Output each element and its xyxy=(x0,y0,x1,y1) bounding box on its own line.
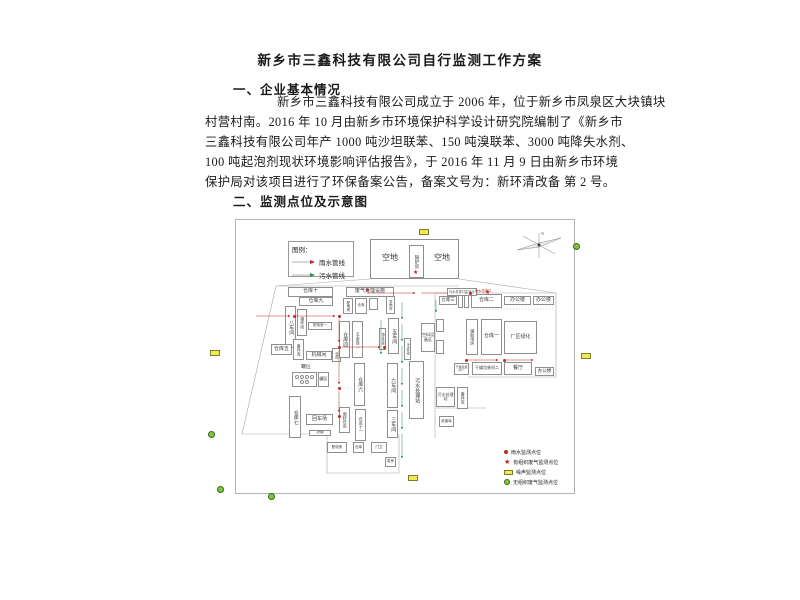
storage-tank xyxy=(295,375,299,379)
organized-gas-monitor-star: ★ xyxy=(413,270,418,276)
monitoring-legend-row: 雨水监测点位 xyxy=(504,447,572,457)
building-回车场: 回车场 xyxy=(306,414,333,425)
building-门卫: 门卫 xyxy=(371,442,387,453)
fugitive-gas-monitor-marker xyxy=(217,486,224,493)
paragraph-line: 保护局对该项目进行了环保备案公告，备案文号为：新环清改备 第 2 号。 xyxy=(205,172,625,192)
building-仓库十: 仓库十 xyxy=(288,287,333,297)
building-干燥包装间一: 干燥包装间一 xyxy=(454,363,469,375)
building-五金库二: 五金库二 xyxy=(352,321,363,358)
paragraph-line: 三鑫科技有限公司年产 1000 吨沙坦联苯、150 吨溴联苯、3000 吨降失水… xyxy=(205,132,625,152)
document-title: 新乡市三鑫科技有限公司自行监测工作方案 xyxy=(0,49,800,69)
storage-tank xyxy=(310,375,314,379)
building-配电室一: 配电室一 xyxy=(308,322,332,330)
building-凉棚: 凉棚 xyxy=(309,430,331,436)
building-厂区绿化: 厂区绿化 xyxy=(504,321,537,354)
building-泵房: 泵房 xyxy=(385,457,396,467)
building-仓库一: 仓库一 xyxy=(481,319,502,355)
building-空料设备区: 空料设备区 xyxy=(421,323,435,352)
storage-tank xyxy=(305,375,309,379)
building-干燥包装间二: 干燥包装间二 xyxy=(472,362,502,375)
building-仓库十一: 仓库十一 xyxy=(355,409,366,441)
building-办公楼: 办公楼 xyxy=(535,367,554,376)
rainwater-monitor-dot xyxy=(338,415,341,418)
organized-gas-monitor-star: ★ xyxy=(365,288,370,294)
building-操作间: 操作间 xyxy=(297,309,307,336)
building-备件库: 备件库 xyxy=(457,387,468,409)
rainwater-monitor-dot xyxy=(503,359,506,362)
monitoring-legend-row: 无组织废气监测点位 xyxy=(504,477,572,487)
pipeline-legend-title: 图例： xyxy=(292,244,350,254)
building-三车间: 三车间 xyxy=(387,410,398,438)
storage-tank xyxy=(305,380,309,384)
noise-point-icon xyxy=(504,470,513,475)
legend-row-sewage: 污水管线 xyxy=(292,270,350,280)
svg-text:N: N xyxy=(541,231,545,236)
legend-row-rainwater: 雨水管线 xyxy=(292,257,350,267)
site-map: 图例： 雨水管线 污水管线 空地空地锅炉房仓库十仓库九八车间操作间配电室一仓库五… xyxy=(235,219,575,494)
monitoring-legend-row: 噪声监测点位 xyxy=(504,467,572,477)
building-仓库三: 仓库三 xyxy=(439,296,457,305)
building-仓库七: 仓库七 xyxy=(289,396,301,438)
monitoring-legend-label: 有组织废气监测点位 xyxy=(513,459,558,466)
rainwater-monitor-dot xyxy=(338,315,341,318)
rainwater-point-icon xyxy=(504,450,508,454)
building-box xyxy=(436,340,444,354)
building-仓库四: 仓库四 xyxy=(339,321,350,358)
monitoring-legend-row: ★ 有组织废气监测点位 xyxy=(504,457,572,467)
fugitive-gas-monitor-marker xyxy=(208,431,215,438)
building-仓库: 仓库 xyxy=(353,442,364,453)
noise-monitor-marker xyxy=(581,353,591,359)
noise-monitor-marker xyxy=(210,350,220,356)
building-配电房: 配电房 xyxy=(343,298,353,314)
sewage-line-icon xyxy=(292,272,316,278)
rainwater-monitor-dot xyxy=(465,359,468,362)
rainwater-monitor-dot xyxy=(469,292,472,295)
fugitive-gas-point-icon xyxy=(504,479,510,485)
pipeline-legend: 图例： 雨水管线 污水管线 xyxy=(288,241,354,277)
organized-gas-point-icon: ★ xyxy=(504,459,510,466)
building-六车间: 六车间 xyxy=(387,363,398,408)
organized-gas-monitor-star: ★ xyxy=(485,290,490,296)
building-餐厅: 餐厅 xyxy=(504,362,532,375)
building-办公楼: 办公楼 xyxy=(533,296,554,305)
section-heading-2: 二、监测点位及示意图 xyxy=(233,191,368,210)
building-仓库六: 仓库六 xyxy=(354,363,365,406)
building-罐区: 罐区 xyxy=(299,364,313,371)
building-空地: 空地 xyxy=(426,250,458,266)
monitoring-legend-label: 雨水监测点位 xyxy=(511,449,541,456)
building-空地: 空地 xyxy=(374,250,406,266)
storage-tank xyxy=(300,380,304,384)
monitoring-legend-label: 无组织废气监测点位 xyxy=(513,479,558,486)
paragraph-line: 100 吨起泡剂现状环境影响评估报告》，于 2016 年 11 月 9 日由新乡… xyxy=(205,152,625,172)
building-变电所: 变电所 xyxy=(386,296,395,314)
building-box xyxy=(292,372,317,387)
storage-tank xyxy=(300,375,304,379)
building-污水处理站: 污水处理站 xyxy=(436,387,455,407)
building-仓库九: 仓库九 xyxy=(299,297,333,306)
building-周转仓库: 周转仓库 xyxy=(339,407,350,433)
building-罐区: 罐区 xyxy=(318,372,329,387)
legend-label: 雨水管线 xyxy=(319,257,345,267)
building-备件库: 备件库 xyxy=(293,339,304,360)
building-box xyxy=(369,298,378,310)
document-page: 新乡市三鑫科技有限公司自行监测工作方案 一、企业基本情况 新乡市三鑫科技有限公司… xyxy=(0,0,800,600)
paragraph-line: 村营村南。2016 年 10 月由新乡市环境保护科学设计研究院编制了《新乡市 xyxy=(205,112,625,132)
building-办公楼: 办公楼 xyxy=(504,296,531,305)
monitoring-legend: 雨水监测点位 ★ 有组织废气监测点位 噪声监测点位 无组织废气监测点位 xyxy=(504,447,572,487)
building-配电房: 配电房 xyxy=(327,442,347,453)
legend-label: 污水管线 xyxy=(319,270,345,280)
outfall-callout: 污水总排口监测点 xyxy=(447,288,477,296)
rainwater-monitor-dot xyxy=(293,315,296,318)
noise-monitor-marker xyxy=(408,475,418,481)
building-污水处理站: 污水处理站 xyxy=(409,361,424,419)
building-污水管线: 污水管线 xyxy=(404,338,411,360)
monitoring-legend-label: 噪声监测点位 xyxy=(516,469,546,476)
building-仓库二: 仓库二 xyxy=(471,294,502,308)
fugitive-gas-monitor-marker xyxy=(573,243,580,250)
paragraph-line: 新乡市三鑫科技有限公司成立于 2006 年，位于新乡市凤泉区大块镇块 xyxy=(205,92,697,112)
rain-line-icon xyxy=(292,259,316,265)
rainwater-monitor-dot xyxy=(338,346,341,349)
rainwater-monitor-dot xyxy=(338,387,341,390)
rainwater-monitor-dot xyxy=(383,346,386,349)
building-仓库: 仓库 xyxy=(355,298,367,314)
building-box xyxy=(436,319,444,332)
building-仓库五: 仓库五 xyxy=(271,344,292,355)
noise-monitor-marker xyxy=(419,229,429,235)
compass-icon: N xyxy=(515,230,563,260)
building-辅助用房: 辅助用房 xyxy=(466,319,478,355)
building-机械间: 机械间 xyxy=(306,351,332,360)
building-危废库: 危废库 xyxy=(439,416,454,427)
fugitive-gas-monitor-marker xyxy=(268,493,275,500)
building-五车间: 五车间 xyxy=(388,318,399,354)
